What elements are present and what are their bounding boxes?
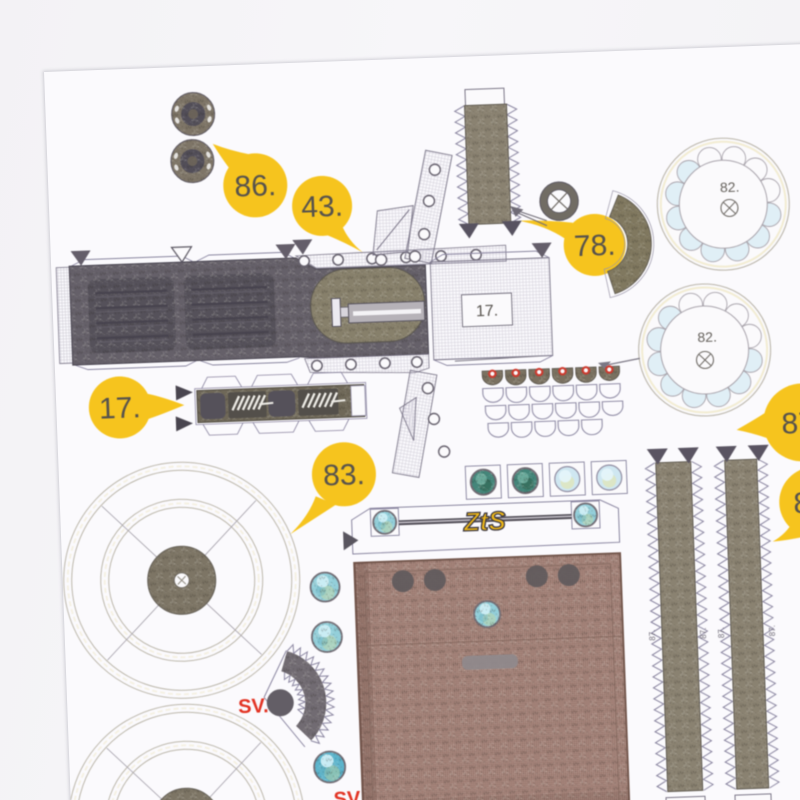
svg-text:87.: 87. (699, 627, 708, 638)
svg-text:87.: 87. (717, 627, 726, 638)
svg-text:87.: 87. (781, 406, 800, 441)
svg-text:17.: 17. (98, 391, 141, 426)
svg-text:82.: 82. (697, 329, 717, 346)
svg-text:86.: 86. (793, 486, 800, 521)
svg-text:43.: 43. (301, 190, 344, 225)
svg-text:87.: 87. (768, 625, 777, 636)
svg-text:17.: 17. (476, 303, 499, 321)
svg-text:83.: 83. (323, 458, 366, 493)
svg-text:SV.: SV. (333, 788, 364, 800)
svg-text:87.: 87. (648, 629, 657, 640)
svg-text:82.: 82. (720, 179, 740, 196)
svg-text:86.: 86. (234, 169, 277, 204)
svg-text:78.: 78. (573, 229, 616, 264)
svg-text:SV.: SV. (238, 695, 269, 718)
svg-text:ZtS: ZtS (462, 505, 507, 537)
